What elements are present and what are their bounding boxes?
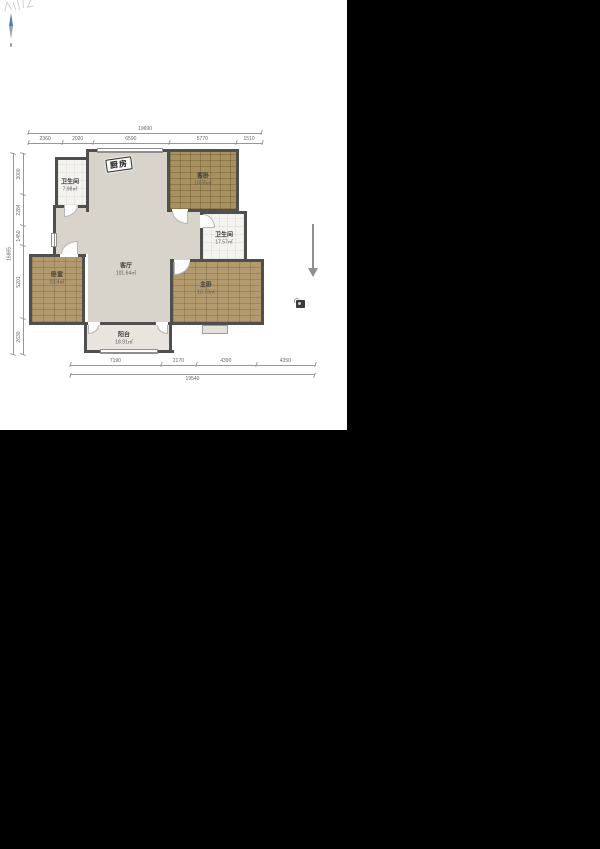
wall [29,254,32,325]
wall [53,205,56,257]
dimension-segment: 4350 [256,358,315,366]
dimension-segment: 5201 [15,246,24,318]
room-name: 客厅 [116,264,136,271]
dimension-bottom-total: 19540 [70,374,315,382]
wall [200,228,203,262]
wall [169,322,172,353]
dimension-value: 5201 [16,277,22,288]
room-area: 13.73㎡ [197,290,215,296]
dimension-value: 3000 [16,168,22,179]
wall [244,211,247,262]
floorplan: 厨房 卫生间 7.98㎡ 客卧 10.55㎡ 卫生间 17.57㎡ 客厅 101… [0,0,347,430]
wall [236,149,239,212]
wall [55,157,58,208]
room-label-balcony: 阳台 18.91㎡ [115,333,133,346]
dimension-value: 2020 [72,136,83,142]
room-name: 阳台 [115,333,133,340]
dimension-value: 6590 [125,136,136,142]
wall [29,322,88,325]
room-area: 101.64㎡ [116,271,136,277]
dimension-value: 16865 [6,247,12,261]
dimension-value: 2170 [173,358,184,364]
wall [200,211,247,214]
wall [84,322,87,353]
dimension-left-segments: 3000 2284 1450 5201 2630 [15,153,24,355]
room-area: 17.57㎡ [215,240,233,246]
down-direction-arrow-icon [308,224,318,280]
dimension-segment: 7190 [70,358,161,366]
dimension-value: 1510 [243,136,254,142]
room-label-bedroom: 卧室 23.4㎡ [50,273,65,286]
dimension-value: 4390 [220,358,231,364]
room-area: 10.55㎡ [194,181,212,187]
dimension-top-total: 19690 [28,126,262,134]
window [97,148,163,153]
room-label-guest-bedroom: 客卧 10.55㎡ [194,174,212,187]
dimension-segment: 3000 [15,153,24,195]
room-label-master-bedroom: 主卧 13.73㎡ [197,283,215,296]
dimension-segment: 5770 [169,136,237,144]
room-name: 卫生间 [61,180,79,187]
dimension-value: 2630 [16,331,22,342]
room-label-living: 客厅 101.64㎡ [116,264,136,277]
bay-window [202,325,228,334]
room-name: 卧室 [50,273,65,280]
dimension-value: 19540 [186,376,200,382]
dimension-value: 2360 [40,136,51,142]
dimension-segment: 2170 [161,358,196,366]
wall [55,157,88,160]
room-name: 厨房 [109,159,128,170]
window [51,233,57,247]
dimension-value: 4350 [280,358,291,364]
dimension-value: 1450 [16,231,22,242]
arrow-stem [312,224,314,270]
dimension-segment: 1450 [15,226,24,246]
dimension-segment: 1510 [236,136,262,144]
arrow-head [308,268,318,277]
dimension-value: 2284 [16,205,22,216]
room-area: 18.91㎡ [115,340,133,346]
small-marker-icon [296,300,305,308]
window [100,349,158,354]
room-area: 7.98㎡ [61,187,79,193]
dimension-segment: 2284 [15,195,24,227]
wall [86,149,89,212]
wall [261,259,264,325]
wall [167,149,170,212]
dimension-segment: 2630 [15,319,24,355]
dimension-value: 7190 [110,358,121,364]
dimension-top-segments: 2360 2020 6590 5770 1510 [28,136,262,144]
bedroom-floor [32,257,82,322]
room-name: 主卧 [197,283,215,290]
room-area: 23.4㎡ [50,280,65,286]
dimension-left-total: 16865 [5,153,14,355]
dimension-segment: 6590 [93,136,169,144]
room-name: 卫生间 [215,233,233,240]
dimension-value: 19690 [138,126,152,132]
dimension-bottom-segments: 7190 2170 4390 4350 [70,358,315,366]
dimension-segment: 4390 [196,358,256,366]
dimension-value: 5770 [197,136,208,142]
wall [170,259,173,325]
wall [167,149,239,152]
floorplan-sheet: 厨房 卫生间 7.98㎡ 客卧 10.55㎡ 卫生间 17.57㎡ 客厅 101… [0,0,347,430]
dimension-segment: 2360 [28,136,62,144]
room-label-bathroom-right: 卫生间 17.57㎡ [215,233,233,246]
dimension-segment: 2020 [62,136,93,144]
wall [82,254,85,324]
wall [100,322,156,325]
room-label-bathroom-top: 卫生间 7.98㎡ [61,180,79,193]
master-bedroom-floor [173,262,261,322]
room-name: 客卧 [194,174,212,181]
